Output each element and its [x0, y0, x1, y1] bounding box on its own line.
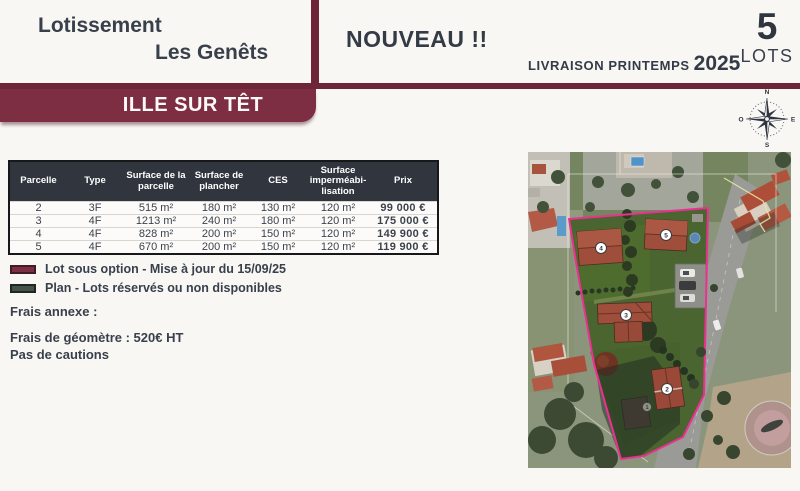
table-row: 34F1213 m²240 m²180 m²120 m²175 000 €	[9, 215, 438, 228]
col-surface-plancher: Surface de plancher	[189, 161, 249, 202]
legend-swatch-reserved	[10, 284, 36, 293]
vertical-divider	[311, 0, 319, 89]
compass-rose-icon: N S E O	[736, 86, 798, 148]
delivery-year: 2025	[694, 52, 741, 75]
legend-item-reserved: Plan - Lots réservés ou non disponibles	[10, 281, 282, 295]
legend-item-option: Lot sous option - Mise à jour du 15/09/2…	[10, 262, 286, 276]
lots-label: LOTS	[738, 46, 796, 67]
delivery-label: LIVRAISON PRINTEMPS	[528, 58, 690, 73]
fee-cautions: Pas de cautions	[10, 347, 109, 362]
parcels-table: Parcelle Type Surface de la parcelle Sur…	[8, 160, 439, 255]
col-parcelle: Parcelle	[9, 161, 67, 202]
page-title-line1: Lotissement	[38, 14, 162, 38]
legend-label-option: Lot sous option - Mise à jour du 15/09/2…	[45, 262, 286, 276]
svg-text:3: 3	[624, 312, 628, 319]
parking-area	[675, 264, 706, 308]
fees-title: Frais annexe :	[10, 304, 97, 319]
compass-north-label: N	[765, 89, 770, 96]
table-row: 44F828 m²200 m²150 m²120 m²149 900 €	[9, 228, 438, 241]
lot-badge-4: 4	[596, 243, 607, 254]
compass-west-label: O	[738, 117, 743, 124]
site-map: 4 5 3 2 1	[528, 152, 791, 468]
lot-badge-2: 2	[662, 384, 673, 395]
col-type: Type	[67, 161, 123, 202]
pool-lot5	[690, 233, 700, 243]
col-surface-impermeabilisation: Surface imperméabi-lisation	[307, 161, 369, 202]
col-surface-parcelle: Surface de la parcelle	[123, 161, 189, 202]
lot-badge-3: 3	[621, 310, 632, 321]
col-prix: Prix	[369, 161, 438, 202]
table-row: 23F515 m²180 m²130 m²120 m²99 000 €	[9, 202, 438, 215]
page-title-line2: Les Genêts	[155, 41, 268, 65]
pool-top	[631, 157, 644, 166]
compass-east-label: E	[791, 117, 796, 124]
city-banner-label: ILLE SUR TÊT	[123, 94, 263, 117]
compass-south-label: S	[765, 142, 770, 148]
lot-badge-5: 5	[661, 230, 672, 241]
lots-counter: 5 LOTS	[738, 8, 796, 67]
legend-label-reserved: Plan - Lots réservés ou non disponibles	[45, 281, 282, 295]
fee-geometre: Frais de géomètre : 520€ HT	[10, 330, 183, 345]
city-banner: ILLE SUR TÊT	[0, 89, 316, 122]
svg-text:1: 1	[645, 405, 648, 411]
legend-swatch-option	[10, 265, 36, 274]
svg-text:4: 4	[599, 245, 603, 252]
delivery-date: LIVRAISON PRINTEMPS2025	[528, 52, 740, 76]
svg-text:2: 2	[665, 386, 669, 393]
new-badge: NOUVEAU !!	[346, 26, 488, 53]
table-header-row: Parcelle Type Surface de la parcelle Sur…	[9, 161, 438, 202]
lot-badge-1: 1	[643, 403, 652, 412]
table-row: 54F670 m²200 m²150 m²120 m²119 900 €	[9, 241, 438, 255]
col-ces: CES	[249, 161, 307, 202]
lots-count: 5	[738, 8, 796, 45]
svg-text:5: 5	[664, 232, 668, 239]
